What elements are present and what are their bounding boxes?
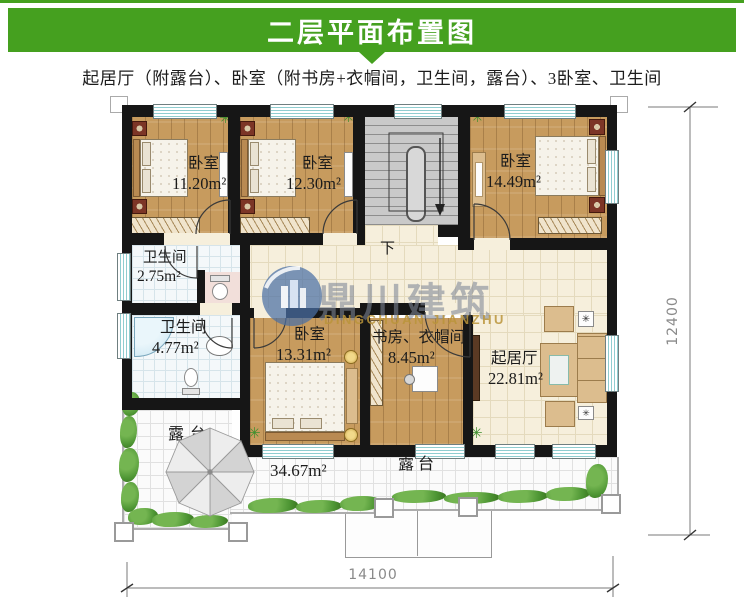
window [394,104,442,119]
nightstand-icon [240,199,255,214]
window [117,313,131,359]
banner-pointer [359,52,385,64]
window [495,444,535,459]
lower-porch-platform [345,510,492,558]
railing-post [374,498,394,518]
room-area: 8.45m² [388,348,465,368]
floor-plan-page: 二层平面布置图 起居厅（附露台）、卧室（附书房+衣帽间，卫生间，露台）、3卧室、… [0,0,744,606]
room-name: 卫生间 [143,250,187,268]
planter-icon: ✳ [578,406,594,420]
nightstand-icon [132,121,147,136]
terrace-left-label: 露台 [168,420,212,444]
door-opening [474,238,510,250]
wall [122,398,250,410]
railing-post [601,494,621,514]
terrace-area-label: 34.67m² [270,461,327,481]
door-opening [196,233,230,245]
pillow-icon [587,167,596,192]
bedroom2-label: 卧室 12.30m² [286,155,341,194]
railing-post [228,522,248,542]
door-opening [254,308,286,318]
living-label: 起居厅 22.81m² [488,350,543,389]
door-opening [323,233,357,245]
room-name: 卫生间 [160,319,207,338]
room-area: 14.49m² [486,172,541,192]
platform-divider [417,510,418,556]
window [605,150,619,204]
room-area: 13.31m² [276,345,331,365]
coffee-table-top-icon [549,355,569,385]
title-banner: 二层平面布置图 [8,8,736,52]
wardrobe-icon [538,217,602,234]
pillow-icon [300,418,322,429]
toilet-tank-icon [182,388,200,395]
window [262,444,334,459]
page-title: 二层平面布置图 [267,11,477,50]
pillow-icon [272,418,294,429]
bed-headboard-icon [241,139,248,197]
plan-summary-text: 起居厅（附露台）、卧室（附书房+衣帽间，卫生间，露台）、3卧室、卫生间 [0,64,744,89]
room-name: 卧室 [188,155,226,174]
toilet-icon [212,283,228,300]
wardrobe-icon [130,217,200,234]
dimension-height-label: 12400 [665,296,681,346]
window [117,253,131,301]
stairs-down-label: 下 [380,237,395,258]
wall [438,225,470,237]
armchair-icon [545,401,575,427]
window [605,335,619,392]
room-area: 4.77m² [152,338,207,358]
wall [228,105,240,245]
wall [197,270,205,303]
study-label: 书房、衣帽间 8.45m² [372,329,465,368]
pillow-icon [250,142,259,166]
railing-post [458,497,478,517]
bath2-label: 卫生间 4.77m² [152,319,207,358]
window [504,104,576,119]
chair-icon [404,374,415,385]
room-area: 2.75m² [137,268,187,287]
bedroom1-label: 卧室 11.20m² [172,155,226,194]
bedroom3-label: 卧室 14.49m² [486,153,541,192]
sink-icon [206,336,233,356]
wall [353,105,365,245]
room-area: 11.20m² [172,174,226,194]
toilet-tank-icon [210,275,230,282]
window [270,104,334,119]
toilet-icon [184,368,198,387]
room-name: 起居厅 [491,350,543,369]
room-name: 卧室 [302,155,341,174]
room-area: 12.30m² [286,174,341,194]
window [153,104,217,119]
railing-post [114,522,134,542]
wall [240,315,250,457]
sofa-icon [577,333,607,403]
planter-icon: ✳ [578,311,594,327]
door-opening [200,303,232,315]
nightstand-icon [132,199,147,214]
wardrobe-icon [240,217,310,234]
bed-headboard-icon [265,432,345,441]
room-name: 卧室 [500,153,541,172]
room-area: 22.81m² [488,369,543,389]
pillow-icon [142,169,151,193]
stair-railing [406,146,426,222]
dresser-icon [344,152,353,197]
nightstand-icon [240,121,255,136]
dimension-line-right [648,102,718,540]
pillow-icon [250,169,259,193]
bedroom4-label: 卧室 13.31m² [276,326,331,365]
dresser-door-icon [475,162,483,197]
pillow-icon [142,142,151,166]
room-name: 卧室 [294,326,331,345]
armchair-icon [544,306,574,332]
dimension-width-label: 14100 [338,567,408,583]
watermark-text-en: DINGCHUAN JIANZHU [324,312,506,327]
lamp-icon [344,428,358,442]
door-opening [164,233,197,245]
nightstand-icon [589,197,605,213]
bed-headboard-icon [133,139,140,197]
top-accent-strip [0,0,744,3]
window [552,444,596,459]
desk-icon [412,366,438,392]
lamp-icon [344,350,358,364]
bedside-bench-icon [346,368,358,424]
nightstand-icon [589,119,605,135]
stair-landing-floor [365,225,438,245]
pillow-icon [587,139,596,164]
bath1-label: 卫生间 2.75m² [137,250,187,287]
room-name: 书房、衣帽间 [372,329,465,348]
terrace-bottom-label: 露台 [398,450,438,474]
